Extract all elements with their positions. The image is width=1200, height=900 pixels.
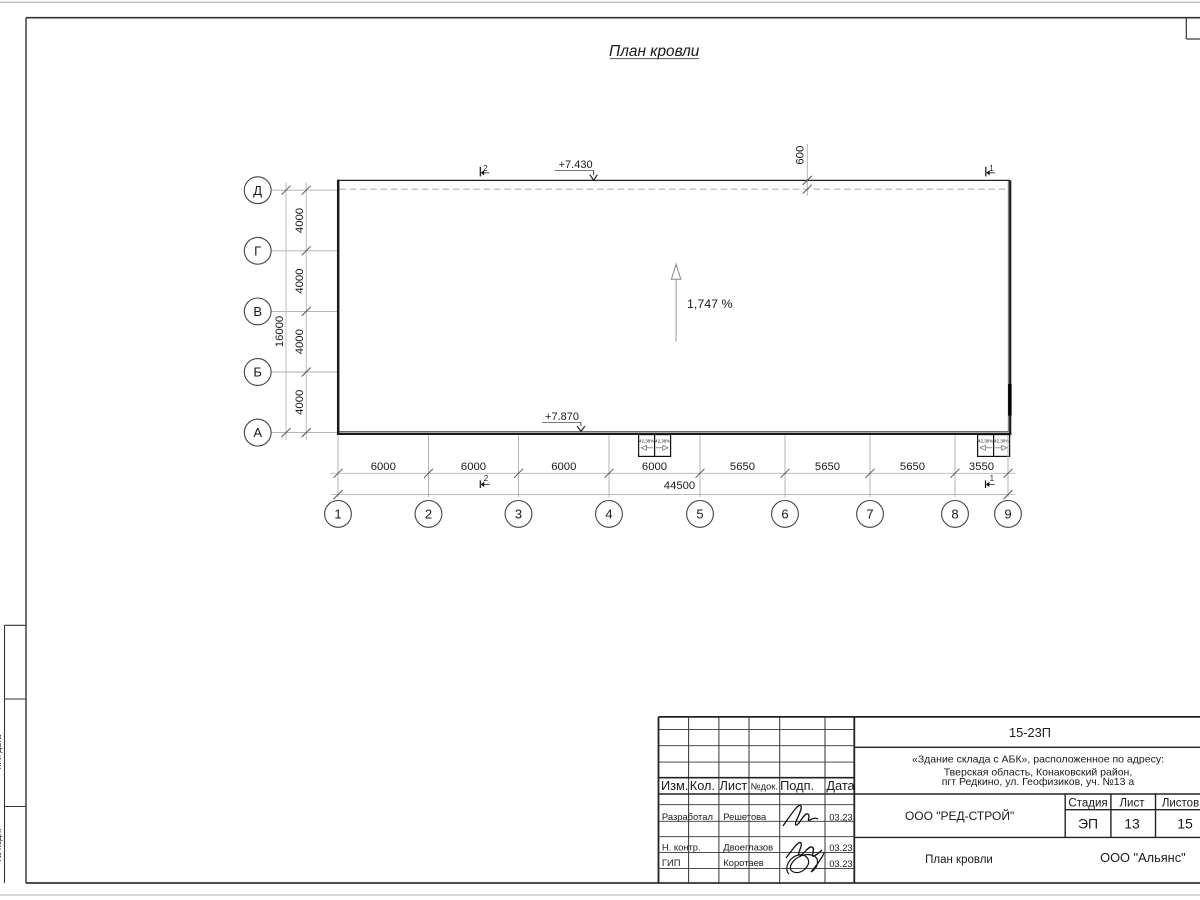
svg-text:Лист: Лист (719, 778, 747, 793)
svg-text:3550: 3550 (969, 461, 994, 473)
svg-text:+7.430: +7.430 (559, 159, 593, 171)
svg-text:Двоеглазов: Двоеглазов (723, 841, 773, 852)
svg-text:ООО "РЕД-СТРОЙ": ООО "РЕД-СТРОЙ" (905, 808, 1014, 823)
svg-text:44500: 44500 (664, 480, 695, 492)
svg-text:Подп.: Подп. (780, 778, 814, 793)
svg-text:8: 8 (951, 507, 958, 522)
svg-text:Кол.: Кол. (690, 778, 715, 793)
svg-text:5650: 5650 (730, 461, 755, 473)
svg-text:Коротаев: Коротаев (723, 857, 764, 868)
svg-text:4000: 4000 (294, 329, 306, 354)
svg-text:Изм.: Изм. (661, 778, 688, 793)
svg-text:4000: 4000 (294, 208, 306, 233)
svg-text:13: 13 (1124, 816, 1140, 832)
svg-text:1: 1 (990, 474, 995, 483)
svg-text:5650: 5650 (815, 461, 840, 473)
svg-text:6: 6 (781, 507, 788, 522)
svg-text:А: А (253, 425, 262, 440)
svg-text:03.23: 03.23 (829, 812, 852, 823)
svg-text:Листов: Листов (1162, 797, 1199, 809)
svg-text:5: 5 (696, 507, 703, 522)
svg-text:+7.870: +7.870 (545, 411, 579, 423)
svg-text:03.23: 03.23 (829, 842, 852, 853)
svg-text:Разработал: Разработал (662, 811, 713, 822)
svg-text:600: 600 (795, 146, 807, 165)
svg-text:1: 1 (334, 507, 341, 522)
svg-text:42,38%: 42,38% (639, 439, 654, 444)
svg-text:План кровли: План кровли (925, 854, 993, 866)
svg-text:6000: 6000 (371, 461, 396, 473)
svg-text:2: 2 (483, 164, 488, 173)
svg-text:п. и дата: п. и дата (0, 735, 3, 770)
svg-text:42,38%: 42,38% (994, 439, 1009, 444)
svg-text:03.23: 03.23 (829, 858, 852, 869)
svg-text:1,747 %: 1,747 % (687, 297, 732, 311)
svg-text:Решетова: Решетова (723, 811, 767, 822)
svg-text:6000: 6000 (642, 461, 667, 473)
svg-text:В: В (253, 304, 262, 319)
svg-text:6000: 6000 (461, 461, 486, 473)
svg-text:«Здание склада с АБК», располо: «Здание склада с АБК», расположенное по … (912, 754, 1164, 766)
svg-text:2: 2 (484, 474, 489, 483)
svg-text:5650: 5650 (900, 461, 925, 473)
svg-text:7: 7 (866, 507, 873, 522)
svg-text:Б: Б (253, 365, 262, 380)
svg-text:3: 3 (515, 507, 522, 522)
svg-text:ООО "Альянс": ООО "Альянс" (1100, 850, 1186, 865)
svg-text:Лист: Лист (1120, 797, 1146, 809)
svg-text:6000: 6000 (551, 461, 576, 473)
svg-text:4: 4 (605, 507, 612, 522)
svg-text:4000: 4000 (294, 390, 306, 415)
svg-text:ЭП: ЭП (1078, 816, 1098, 832)
svg-text:Г: Г (254, 243, 261, 258)
svg-text:42,38%: 42,38% (655, 439, 670, 444)
svg-text:Д: Д (253, 183, 262, 198)
svg-text:Дата: Дата (826, 778, 855, 793)
svg-text:15: 15 (1177, 816, 1193, 832)
svg-text:№док.: №док. (751, 781, 778, 791)
svg-text:ГИП: ГИП (662, 857, 681, 868)
svg-text:2: 2 (425, 507, 432, 522)
svg-text:15-23П: 15-23П (1009, 725, 1051, 740)
svg-text:16000: 16000 (274, 316, 286, 347)
svg-text:Н. контр.: Н. контр. (662, 841, 701, 852)
svg-text:4000: 4000 (294, 269, 306, 294)
svg-text:42,38%: 42,38% (978, 439, 993, 444)
svg-text:План кровли: План кровли (609, 43, 700, 60)
svg-text:№ подл.: № подл. (0, 829, 3, 862)
svg-text:1: 1 (989, 164, 994, 173)
svg-text:9: 9 (1004, 507, 1011, 522)
svg-text:Стадия: Стадия (1068, 797, 1107, 809)
svg-text:пгт Редкино, ул. Геофизиков, у: пгт Редкино, ул. Геофизиков, уч. №13 а (942, 776, 1135, 788)
